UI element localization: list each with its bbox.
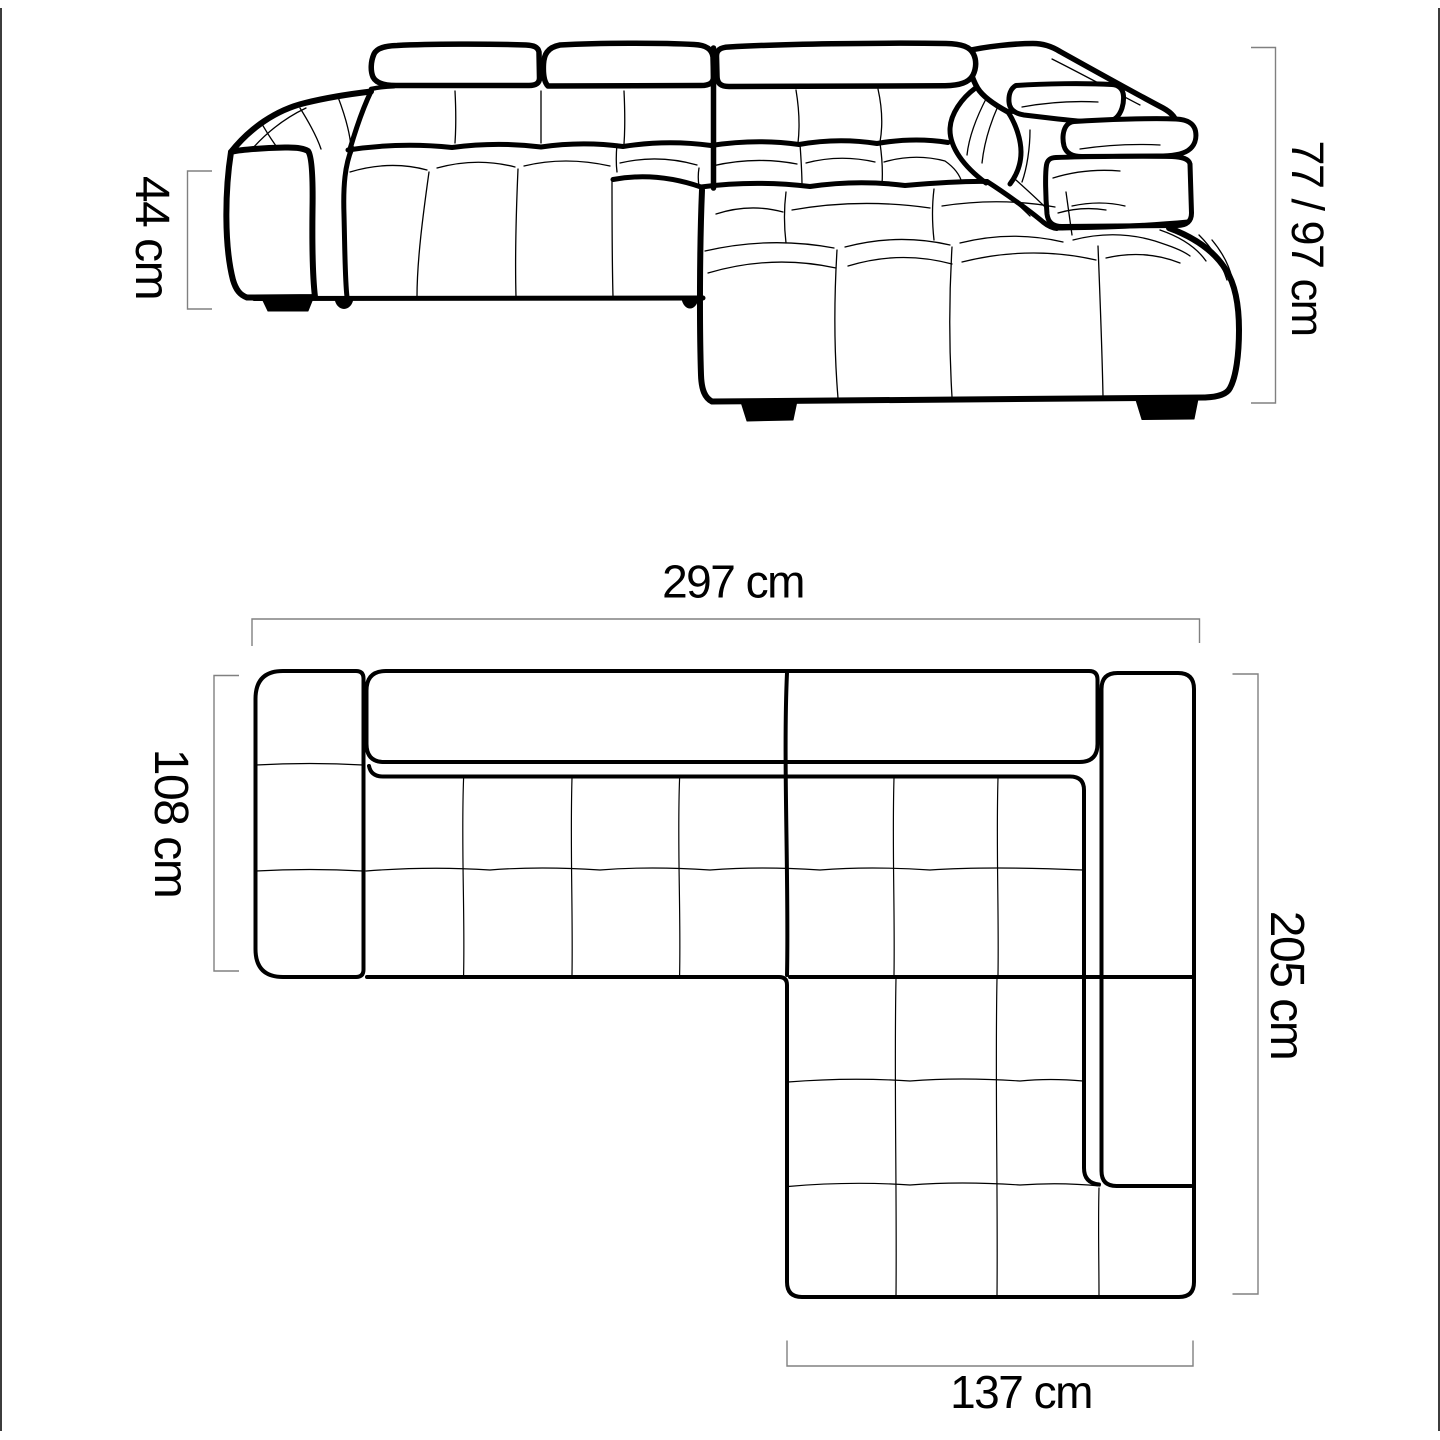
svg-text:77 / 97 cm: 77 / 97 cm (1282, 140, 1333, 335)
svg-text:108 cm: 108 cm (144, 749, 197, 897)
svg-text:137 cm: 137 cm (950, 1366, 1092, 1418)
svg-text:297 cm: 297 cm (662, 556, 804, 608)
svg-text:44 cm: 44 cm (125, 176, 178, 299)
svg-text:205 cm: 205 cm (1260, 911, 1313, 1059)
